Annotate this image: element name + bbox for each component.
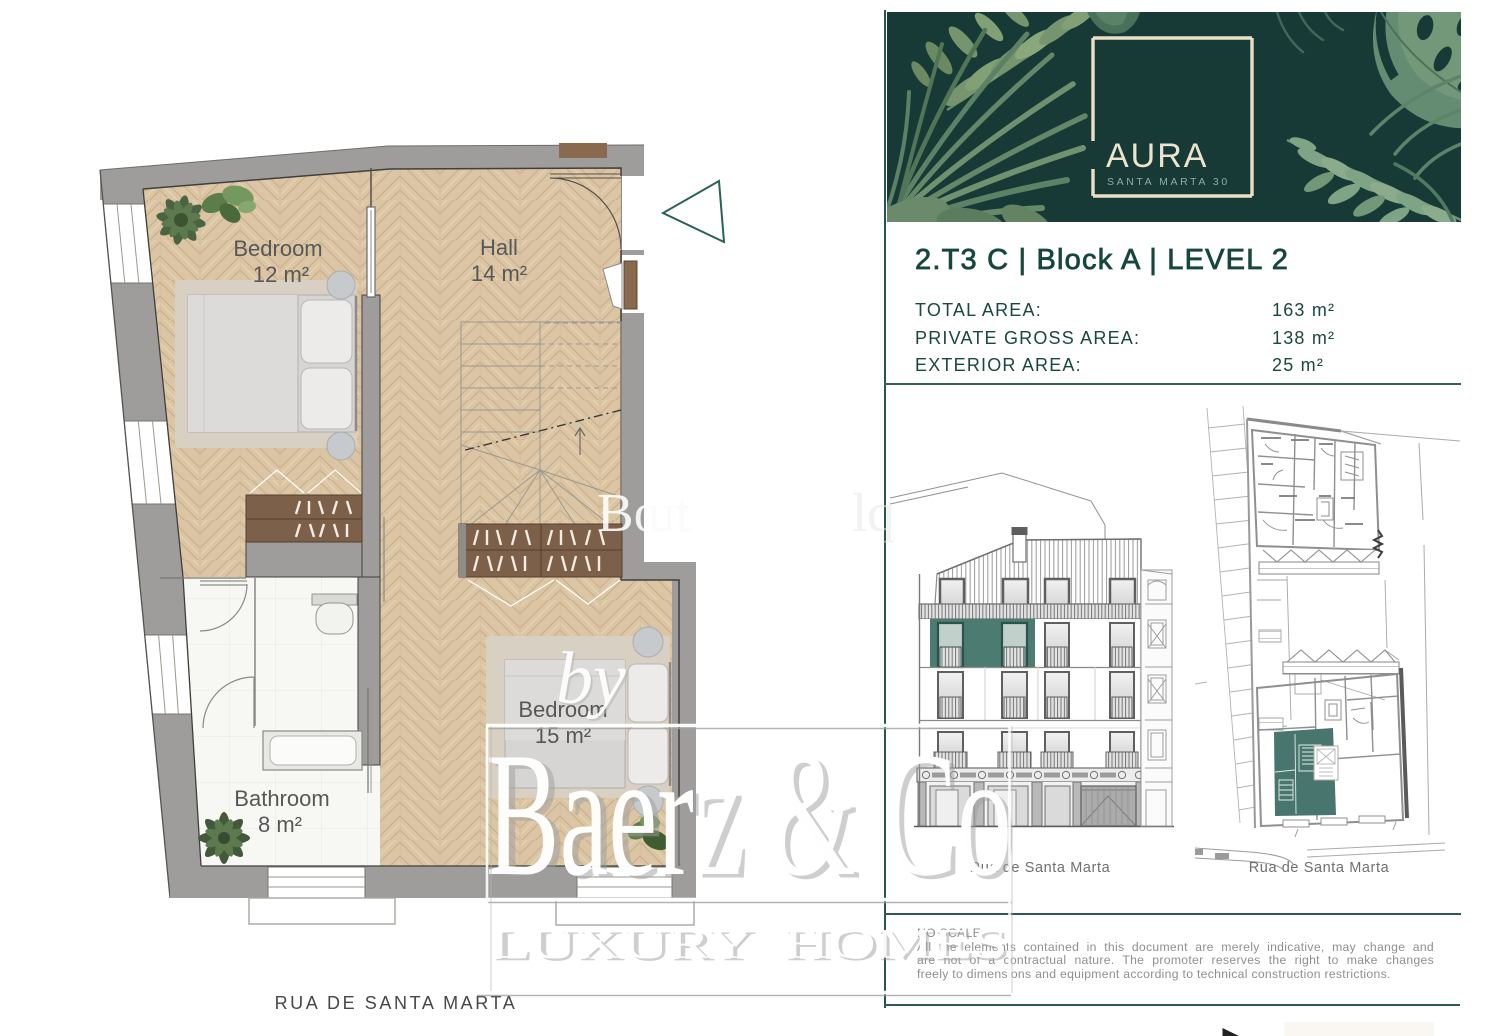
svg-text:15 m²: 15 m² xyxy=(535,723,591,748)
svg-text:Bedroom: Bedroom xyxy=(233,236,322,261)
svg-text:AURA: AURA xyxy=(1106,137,1208,175)
svg-text:8 m²: 8 m² xyxy=(258,812,302,837)
svg-text:12 m²: 12 m² xyxy=(253,262,309,287)
svg-text:SANTA MARTA 30: SANTA MARTA 30 xyxy=(1107,176,1230,188)
svg-text:14 m²: 14 m² xyxy=(471,261,527,286)
svg-text:RUA DE SANTA MARTA: RUA DE SANTA MARTA xyxy=(275,993,518,1013)
svg-text:Hall: Hall xyxy=(480,235,518,260)
svg-text:Bathroom: Bathroom xyxy=(234,786,329,811)
svg-text:Bedroom: Bedroom xyxy=(518,697,607,722)
